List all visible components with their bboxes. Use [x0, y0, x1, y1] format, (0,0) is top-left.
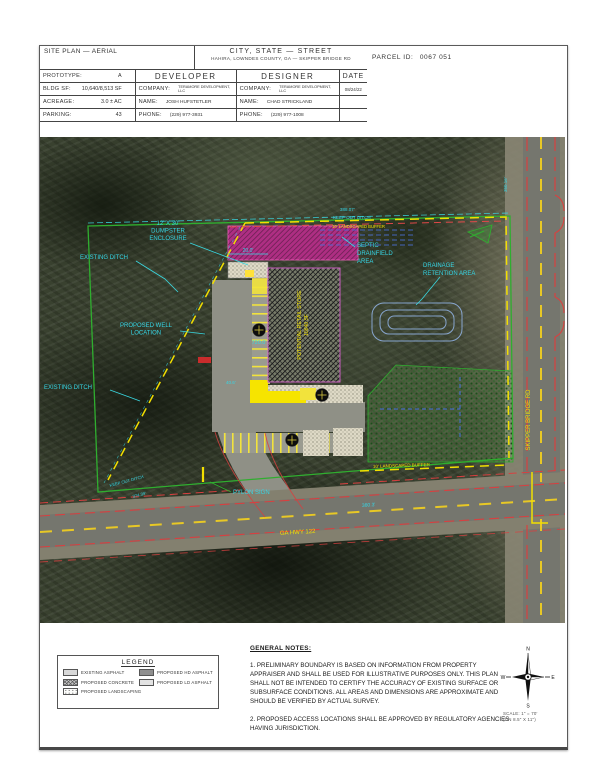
- dumpster-label-2: DUMPSTER: [151, 229, 185, 235]
- keep-out-left-label: KEEP OUT DITCH: [109, 474, 144, 488]
- existing-ditch-label-2: EXISTING DITCH: [44, 385, 92, 391]
- parking-row-yellow-patch: [252, 279, 267, 294]
- proposed-landscaping-swatch: [63, 688, 78, 695]
- location-subtitle: HAHIRA, LOWNDES COUNTY, GA — SKIPPER BRI…: [195, 56, 367, 61]
- parking-value: 43: [116, 112, 122, 118]
- date-header: DATE: [340, 70, 367, 83]
- septic-label-3: AREA: [357, 259, 373, 265]
- developer-company-row: COMPANY: TERAMORE DEVELOPMENT, LLC: [136, 83, 236, 96]
- compass-s: S: [526, 704, 530, 710]
- legend-item-ld-asphalt: PROPOSED LD ASPHALT: [139, 679, 219, 686]
- acreage-value: 3.0 ± AC: [101, 99, 122, 105]
- existing-ditch-label-1: EXISTING DITCH: [80, 255, 128, 261]
- red-tag: [198, 357, 211, 363]
- proposed-well-label-1: PROPOSED WELL: [120, 323, 173, 329]
- prototype-label: PROTOTYPE:: [43, 73, 82, 79]
- developer-name-label: NAME:: [139, 99, 158, 105]
- designer-company-row: COMPANY: TERAMORE DEVELOPMENT, LLC: [237, 83, 339, 96]
- proposed-hd-asphalt-swatch: [139, 669, 154, 676]
- pylon-leader: [210, 482, 231, 492]
- building-label-line1: POTENTIAL RETAIL STORE: [297, 290, 303, 360]
- dumpster-label-1: 12' X 30': [157, 221, 180, 227]
- date-empty-2: [340, 109, 367, 122]
- date-value: 08/24/22: [340, 83, 367, 96]
- designer-column: DESIGNER COMPANY: TERAMORE DEVELOPMENT, …: [237, 70, 340, 122]
- title-block-row1: SITE PLAN — AERIAL CITY, STATE — STREET …: [40, 46, 367, 70]
- sheet-title: SITE PLAN — AERIAL: [40, 46, 195, 69]
- site-plan-sheet: SITE PLAN — AERIAL CITY, STATE — STREET …: [0, 0, 600, 777]
- note-2: 2. PROPOSED ACCESS LOCATIONS SHALL BE AP…: [250, 715, 512, 733]
- aerial-photo: POTENTIAL RETAIL STORE 10640 SF: [40, 137, 565, 623]
- proposed-concrete-swatch: [63, 679, 78, 686]
- legend-item-concrete: PROPOSED CONCRETE: [63, 679, 139, 686]
- dim-20: 20.0': [243, 248, 254, 254]
- bldg-sf-row: BLDG SF: 10,640/8,513 SF: [40, 83, 135, 96]
- landscaped-area: [368, 365, 513, 462]
- dim-40: 40.6': [226, 380, 236, 385]
- acreage-row: ACREAGE: 3.0 ± AC: [40, 96, 135, 109]
- legend-items: EXISTING ASPHALT PROPOSED HD ASPHALT PRO…: [58, 666, 218, 695]
- designer-name-value: CHAD STRICKLAND: [267, 100, 312, 105]
- drive-aisle-horizontal: [212, 402, 365, 432]
- designer-company-value: TERAMORE DEVELOPMENT, LLC: [279, 85, 335, 93]
- sidewalk-L: [250, 380, 306, 403]
- developer-name-value: JOSH HUFSTETLER: [166, 100, 212, 105]
- parking-label: PARKING:: [43, 112, 72, 118]
- building-footprint: POTENTIAL RETAIL STORE 10640 SF: [268, 268, 340, 382]
- septic-label-2: DRAINFIELD: [357, 251, 393, 257]
- sidewalk-patch: [300, 388, 316, 400]
- developer-header: DEVELOPER: [136, 70, 236, 83]
- parcel-id: PARCEL ID: 0067 051: [372, 54, 452, 61]
- parcel-id-value: 0067 051: [420, 54, 452, 61]
- legend-label: PROPOSED CONCRETE: [81, 680, 134, 685]
- dim-350: 350.16': [503, 177, 508, 192]
- dim-720: 720.0': [252, 340, 267, 346]
- general-notes-heading: GENERAL NOTES:: [250, 644, 512, 653]
- proposed-ld-asphalt-swatch: [139, 679, 154, 686]
- skipper-bridge-rd-label: SKIPPER BRIDGE RD: [526, 389, 532, 451]
- legend-title: LEGEND: [58, 659, 218, 666]
- prototype-value: A: [118, 73, 122, 79]
- dim-388: 388.07': [340, 207, 355, 212]
- date-empty-1: [340, 96, 367, 109]
- designer-name-label: NAME:: [240, 99, 259, 105]
- title-block-grid: PROTOTYPE: A BLDG SF: 10,640/8,513 SF AC…: [40, 70, 367, 122]
- legend-item-landscaping: PROPOSED LANDSCAPING: [63, 688, 139, 695]
- compass-n: N: [526, 647, 530, 653]
- developer-phone-row: PHONE: (229) 977-3931: [136, 109, 236, 122]
- designer-phone-label: PHONE:: [240, 112, 263, 118]
- existing-asphalt-swatch: [63, 669, 78, 676]
- date-column: DATE 08/24/22: [340, 70, 367, 122]
- developer-column: DEVELOPER COMPANY: TERAMORE DEVELOPMENT,…: [136, 70, 237, 122]
- dumpster-pad-mark: [245, 270, 254, 277]
- landscape-island-1: [303, 430, 329, 456]
- building-label-line2: 10640 SF: [304, 314, 310, 336]
- dim-360: 360.3': [362, 502, 376, 509]
- legend-item-existing-asphalt: EXISTING ASPHALT: [63, 669, 139, 676]
- designer-phone-value: (229) 977-1008: [271, 113, 304, 118]
- septic-label-1: SEPTIC: [357, 243, 379, 249]
- existing-drive-marker: [468, 225, 492, 243]
- developer-name-row: NAME: JOSH HUFSTETLER: [136, 96, 236, 109]
- prototype-row: PROTOTYPE: A: [40, 70, 135, 83]
- drainage-label-2: RETENTION AREA: [423, 271, 475, 277]
- compass-rose: N E S W: [500, 644, 556, 710]
- compass-star: [506, 653, 550, 701]
- designer-header: DESIGNER: [237, 70, 339, 83]
- note-1: 1. PRELIMINARY BOUNDARY IS BASED ON INFO…: [250, 661, 512, 706]
- developer-company-label: COMPANY:: [139, 86, 171, 92]
- landscape-island-2: [333, 428, 363, 456]
- site-facts-column: PROTOTYPE: A BLDG SF: 10,640/8,513 SF AC…: [40, 70, 136, 122]
- site-plan-overlay: POTENTIAL RETAIL STORE 10640 SF: [40, 137, 565, 623]
- bldg-sf-label: BLDG SF:: [43, 86, 71, 92]
- legend-label: PROPOSED HD ASPHALT: [157, 670, 213, 675]
- pylon-sign-label: PYLON SIGN: [233, 490, 270, 496]
- legend-item-hd-asphalt: PROPOSED HD ASPHALT: [139, 669, 219, 676]
- drive-aisle-vertical: [212, 280, 252, 404]
- developer-phone-label: PHONE:: [139, 112, 162, 118]
- designer-name-row: NAME: CHAD STRICKLAND: [237, 96, 339, 109]
- parcel-id-label: PARCEL ID:: [372, 54, 413, 61]
- developer-phone-value: (229) 977-3931: [170, 113, 203, 118]
- title-block: SITE PLAN — AERIAL CITY, STATE — STREET …: [40, 46, 367, 122]
- drainage-label-1: DRAINAGE: [423, 263, 454, 269]
- location-title: CITY, STATE — STREET: [195, 48, 367, 55]
- designer-company-label: COMPANY:: [240, 86, 272, 92]
- compass-e: E: [551, 675, 555, 681]
- bldg-sf-value: 10,640/8,513 SF: [82, 86, 122, 92]
- developer-company-value: TERAMORE DEVELOPMENT, LLC: [178, 85, 232, 93]
- acreage-label: ACREAGE:: [43, 99, 74, 105]
- legend-title-text: LEGEND: [121, 659, 156, 667]
- compass-w: W: [501, 675, 506, 681]
- proposed-well-label-2: LOCATION: [131, 331, 161, 337]
- parking-row: PARKING: 43: [40, 109, 135, 122]
- legend-label: PROPOSED LANDSCAPING: [81, 689, 141, 694]
- dumpster-label-3: ENCLOSURE: [149, 236, 186, 242]
- scale-line2: (ON 8.5" X 11"): [503, 717, 563, 723]
- general-notes: GENERAL NOTES: 1. PRELIMINARY BOUNDARY I…: [250, 644, 512, 742]
- legend-label: EXISTING ASPHALT: [81, 670, 124, 675]
- buffer-top-label: 10' LANDSCAPED BUFFER: [332, 224, 385, 229]
- retention-pond: [372, 303, 462, 341]
- dim-374: 374.39': [132, 491, 147, 499]
- keep-out-top-label: KEEP OUT DITCH: [333, 215, 371, 220]
- legend-label: PROPOSED LD ASPHALT: [157, 680, 212, 685]
- buffer-area-hatch: [228, 226, 358, 260]
- legend-box: LEGEND EXISTING ASPHALT PROPOSED HD ASPH…: [57, 655, 219, 709]
- designer-phone-row: PHONE: (229) 977-1008: [237, 109, 339, 122]
- scale-note: SCALE: 1" = 70' (ON 8.5" X 11"): [503, 711, 563, 722]
- location-cell: CITY, STATE — STREET HAHIRA, LOWNDES COU…: [195, 46, 367, 69]
